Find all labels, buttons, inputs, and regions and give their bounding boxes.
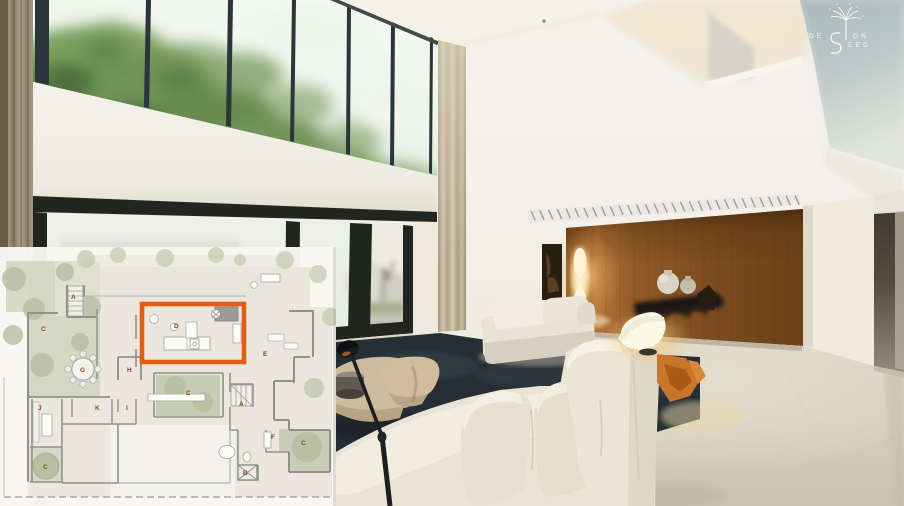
svg-text:A: A bbox=[71, 294, 76, 301]
svg-text:A: A bbox=[239, 401, 244, 408]
svg-text:K: K bbox=[95, 405, 100, 412]
svg-text:E: E bbox=[263, 351, 268, 358]
svg-text:G: G bbox=[80, 367, 85, 374]
svg-text:EED: EED bbox=[848, 42, 871, 49]
svg-text:H: H bbox=[127, 367, 132, 374]
svg-text:C: C bbox=[186, 390, 191, 397]
svg-text:I: I bbox=[126, 405, 128, 412]
svg-text:B: B bbox=[243, 470, 248, 477]
svg-text:DE: DE bbox=[809, 33, 824, 40]
svg-text:F: F bbox=[271, 434, 275, 441]
svg-text:C: C bbox=[301, 440, 306, 447]
svg-text:C: C bbox=[43, 464, 48, 471]
svg-text:GN: GN bbox=[853, 33, 869, 40]
svg-text:C: C bbox=[41, 326, 46, 333]
svg-text:D: D bbox=[174, 323, 179, 330]
svg-text:J: J bbox=[38, 405, 42, 412]
